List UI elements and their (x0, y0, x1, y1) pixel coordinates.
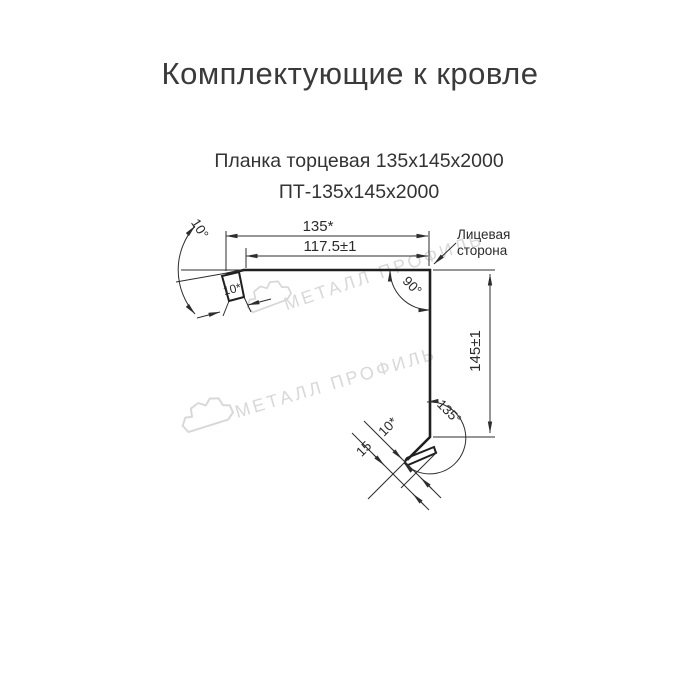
profile-outline (222, 270, 436, 465)
angle-top-left: 10° (188, 216, 212, 241)
dim-total-width: 135* (303, 218, 334, 235)
arrow-10-b (421, 478, 432, 489)
witness-flange-extension (368, 460, 407, 499)
witness-left-hem-a (223, 301, 229, 316)
arrow-15-b (413, 494, 424, 505)
ref-line-angled (176, 270, 244, 282)
profile-bottom-hem (405, 447, 436, 465)
angle-bottom: 135° (434, 397, 464, 427)
product-name: Планка торцевая 135х145х2000 (9, 150, 700, 173)
leader-face-side (434, 243, 456, 264)
dimension-lines (176, 226, 495, 510)
dim-left-hem: 10* (222, 280, 243, 298)
dimension-labels: 135* 117.5±1 Лицевая сторона 90° 145±1 1… (188, 216, 510, 459)
product-sku: ПТ-135х145х2000 (9, 181, 700, 204)
face-side-line2: сторона (457, 243, 508, 258)
face-side-line1: Лицевая (457, 227, 510, 242)
page: Комплектующие к кровле Планка торцевая 1… (0, 0, 700, 700)
arrow-10-a (391, 448, 402, 459)
arrow-15-a (373, 454, 384, 465)
technical-drawing: 135* 117.5±1 Лицевая сторона 90° 145±1 1… (0, 0, 700, 700)
arrow-left-hem-b (248, 299, 271, 305)
angle-corner: 90° (400, 273, 425, 298)
dim-height: 145±1 (467, 330, 484, 372)
dim-inner-width: 117.5±1 (304, 238, 357, 255)
page-title: Комплектующие к кровле (0, 56, 700, 92)
dim-bottom-flange: 15 (353, 438, 374, 459)
arrow-left-hem-a (197, 312, 220, 318)
